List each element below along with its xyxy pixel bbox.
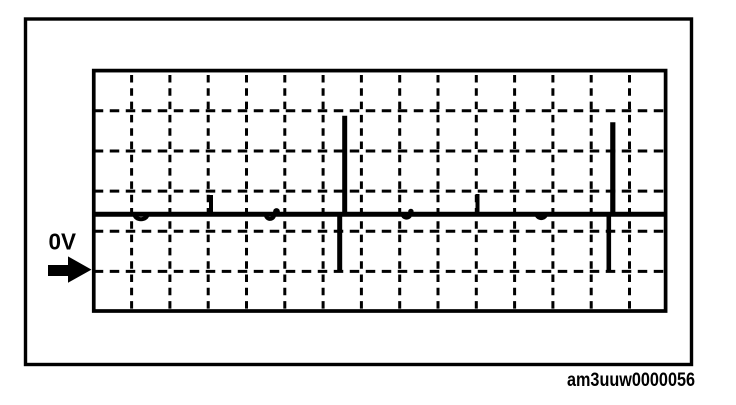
- svg-text:am3uuw0000056: am3uuw0000056: [567, 370, 695, 391]
- svg-text:0V: 0V: [49, 228, 77, 254]
